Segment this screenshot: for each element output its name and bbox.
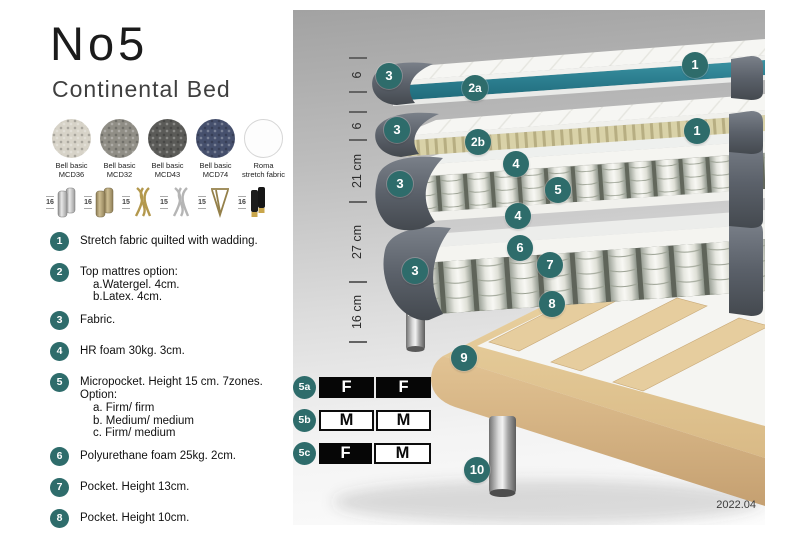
spec-item: 4 HR foam 30kg. 3cm. (50, 342, 290, 361)
leg-option: 15 (122, 186, 154, 218)
leg-option: 15 (160, 186, 192, 218)
fabric-swatch: Bell basicMCD74 (193, 119, 238, 179)
firmness-cell: M (319, 410, 374, 431)
spec-text: Stretch fabric quilted with wadding. (80, 232, 258, 251)
leg-option: 15 (198, 186, 232, 218)
callout-badge-2a: 2a (462, 75, 488, 101)
leg-height: 16 (84, 199, 92, 206)
spec-subitem: a.Watergel. 4cm. (80, 279, 180, 291)
leg-icon-cylinder-silver (56, 186, 78, 218)
spec-item: 3 Fabric. (50, 311, 290, 330)
callout-badge-3: 3 (376, 63, 402, 89)
fabric-code: MCD32 (97, 171, 142, 180)
fabric-swatch: Bell basicMCD43 (145, 119, 190, 179)
dash (198, 196, 206, 197)
callout-badge-5: 5 (545, 177, 571, 203)
spec-list: 1 Stretch fabric quilted with wadding. 2… (50, 232, 290, 533)
fabric-code: MCD43 (145, 171, 190, 180)
fabric-swatch: Bell basicMCD32 (97, 119, 142, 179)
leg-option: 16 (238, 186, 268, 218)
product-sheet: No5 Continental Bed Bell basicMCD36 Bell… (0, 0, 800, 533)
spec-number-badge: 2 (50, 263, 69, 282)
dash (46, 208, 54, 209)
dash (238, 196, 246, 197)
dash (122, 208, 130, 209)
leg-icon-twisted-gold (132, 186, 154, 218)
spec-item: 1 Stretch fabric quilted with wadding. (50, 232, 290, 251)
fabric-swatch-circle (100, 119, 139, 158)
spec-text: Pocket. Height 13cm. (80, 478, 189, 497)
spec-item: 6 Polyurethane foam 25kg. 2cm. (50, 447, 290, 466)
fabric-swatch: Romastretch fabric (241, 119, 286, 179)
metal-leg-front (489, 416, 516, 497)
spec-text: Top mattres option: (80, 263, 180, 279)
firmness-cell: M (374, 443, 431, 464)
product-title: No5 (50, 16, 148, 71)
firmness-cell: M (376, 410, 431, 431)
fabric-swatch-circle (148, 119, 187, 158)
leg-height: 15 (160, 199, 168, 206)
dash (122, 196, 130, 197)
spec-subitem: c. Firm/ medium (80, 427, 290, 439)
dimension-label: 27 cm (350, 212, 364, 272)
leg-height: 16 (238, 199, 246, 206)
leg-height: 15 (198, 199, 206, 206)
dimension-label: 16 cm (350, 282, 364, 342)
leg-icon-cylinder-black-gold (248, 186, 268, 218)
spec-number-badge: 4 (50, 342, 69, 361)
fabric-code: stretch fabric (241, 171, 286, 180)
spec-text: HR foam 30kg. 3cm. (80, 342, 185, 361)
callout-badge-9: 9 (451, 345, 477, 371)
firmness-cell: F (319, 377, 374, 398)
dimension-tick (349, 201, 367, 203)
spec-text: Fabric. (80, 311, 115, 330)
leg-icon-twisted-silver (170, 186, 192, 218)
spec-subitem: b.Latex. 4cm. (80, 291, 180, 303)
spec-number-badge: 7 (50, 478, 69, 497)
firmness-table: 5a F F 5b M M 5c F M (293, 376, 431, 475)
callout-badge-10: 10 (464, 457, 490, 483)
spec-subitem: b. Medium/ medium (80, 415, 290, 427)
callout-badge-3: 3 (387, 171, 413, 197)
firmness-cell: F (319, 443, 372, 464)
spec-number-badge: 3 (50, 311, 69, 330)
firmness-row: 5c F M (293, 442, 431, 464)
dash (160, 196, 168, 197)
leg-option: 16 (46, 186, 78, 218)
floor-shadow (333, 480, 763, 524)
layer-topper (372, 39, 765, 106)
fabric-swatch-circle (244, 119, 283, 158)
dash (238, 208, 246, 209)
spec-number-badge: 1 (50, 232, 69, 251)
leg-icon-cylinder-bronze (94, 186, 116, 218)
spec-text: Micropocket. Height 15 cm. 7zones. Optio… (80, 373, 290, 402)
spec-text: Polyurethane foam 25kg. 2cm. (80, 447, 236, 466)
spec-number-badge: 6 (50, 447, 69, 466)
leg-height: 16 (46, 199, 54, 206)
spec-item: 8 Pocket. Height 10cm. (50, 509, 290, 528)
firmness-row: 5a F F (293, 376, 431, 398)
info-column: No5 Continental Bed Bell basicMCD36 Bell… (0, 0, 293, 533)
firmness-row-badge: 5b (293, 409, 316, 432)
dash (46, 196, 54, 197)
dash (198, 208, 206, 209)
leg-icon-hairpin-gold (208, 186, 232, 218)
spec-item: 2 Top mattres option: a.Watergel. 4cm. b… (50, 263, 290, 303)
firmness-cell: F (376, 377, 431, 398)
dash (84, 196, 92, 197)
fabric-swatch: Bell basicMCD36 (49, 119, 94, 179)
callout-badge-8: 8 (539, 291, 565, 317)
spec-number-badge: 5 (50, 373, 69, 392)
fabric-code: MCD36 (49, 171, 94, 180)
callout-badge-3: 3 (384, 117, 410, 143)
leg-height: 15 (122, 199, 130, 206)
fabric-swatch-circle (196, 119, 235, 158)
version-label: 2022.04 (716, 499, 756, 511)
spec-number-badge: 8 (50, 509, 69, 528)
callout-badge-3: 3 (402, 258, 428, 284)
firmness-row-badge: 5c (293, 442, 316, 465)
fabric-swatch-circle (52, 119, 91, 158)
callout-badge-1: 1 (684, 118, 710, 144)
callout-badge-6: 6 (507, 235, 533, 261)
diagram-panel: 6 6 21 cm 27 cm 16 cm 3 2a 1 3 2b 1 4 3 … (293, 10, 765, 525)
dash (84, 208, 92, 209)
fabric-swatches: Bell basicMCD36 Bell basicMCD32 Bell bas… (49, 119, 286, 179)
dimension-label: 21 cm (350, 141, 364, 201)
callout-badge-1: 1 (682, 52, 708, 78)
leg-option: 16 (84, 186, 116, 218)
spec-item: 7 Pocket. Height 13cm. (50, 478, 290, 497)
firmness-row-badge: 5a (293, 376, 316, 399)
callout-badge-4: 4 (505, 203, 531, 229)
product-subtitle: Continental Bed (52, 76, 231, 103)
spec-text: Pocket. Height 10cm. (80, 509, 189, 528)
fabric-code: MCD74 (193, 171, 238, 180)
spec-item: 5 Micropocket. Height 15 cm. 7zones. Opt… (50, 373, 290, 439)
callout-badge-7: 7 (537, 252, 563, 278)
firmness-row: 5b M M (293, 409, 431, 431)
spec-subitem: a. Firm/ firm (80, 402, 290, 414)
callout-badge-4: 4 (503, 151, 529, 177)
leg-options: 16 16 15 (46, 186, 268, 218)
callout-badge-2b: 2b (465, 129, 491, 155)
dash (160, 208, 168, 209)
